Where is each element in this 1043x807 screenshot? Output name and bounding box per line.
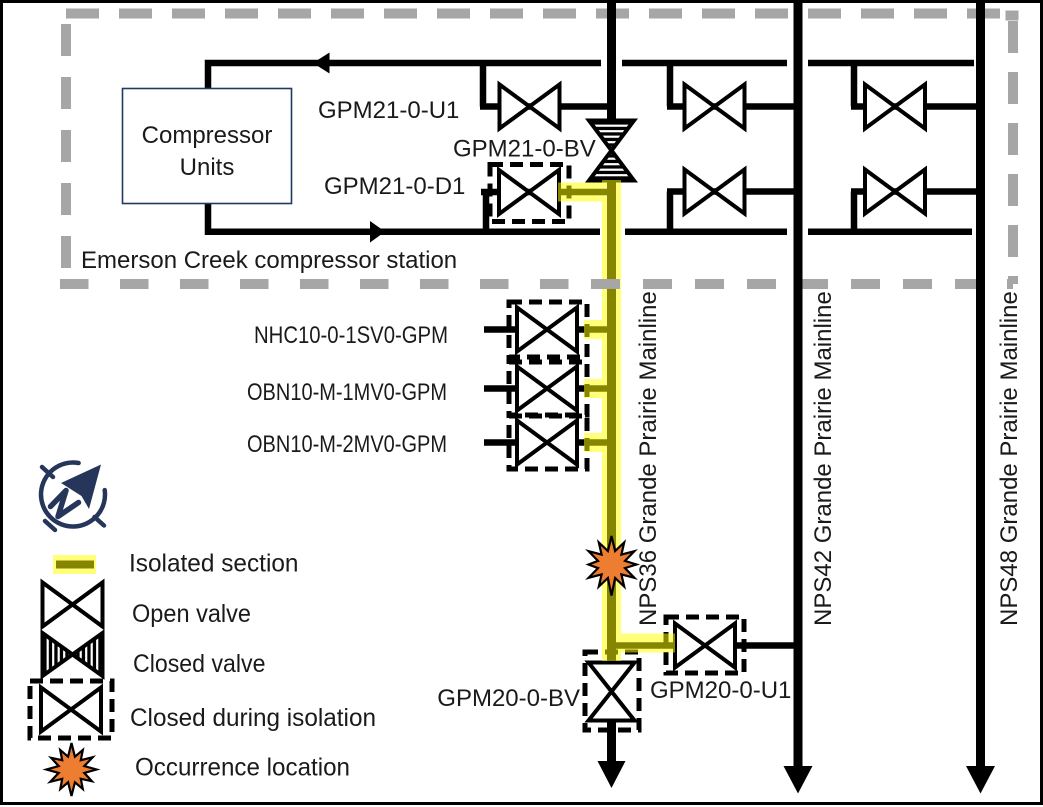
svg-text:OBN10-M-1MV0-GPM: OBN10-M-1MV0-GPM (247, 379, 447, 406)
svg-text:Occurrence location: Occurrence location (135, 754, 350, 782)
svg-text:Compressor: Compressor (142, 122, 273, 149)
svg-text:GPM21-0-U1: GPM21-0-U1 (318, 97, 459, 124)
svg-text:NPS48 Grande Prairie Mainline: NPS48 Grande Prairie Mainline (996, 291, 1023, 626)
svg-text:GPM20-0-U1: GPM20-0-U1 (650, 677, 791, 704)
svg-text:NPS36 Grande Prairie Mainline: NPS36 Grande Prairie Mainline (635, 291, 662, 626)
svg-text:Closed during isolation: Closed during isolation (130, 704, 376, 732)
svg-text:Open valve: Open valve (132, 600, 251, 628)
svg-text:Emerson Creek compressor stati: Emerson Creek compressor station (81, 247, 457, 274)
svg-text:GPM21-0-BV: GPM21-0-BV (453, 136, 596, 163)
svg-text:GPM20-0-BV: GPM20-0-BV (437, 685, 580, 712)
svg-text:OBN10-M-2MV0-GPM: OBN10-M-2MV0-GPM (247, 431, 447, 458)
svg-text:NPS42 Grande Prairie Mainline: NPS42 Grande Prairie Mainline (810, 291, 837, 626)
svg-text:GPM21-0-D1: GPM21-0-D1 (324, 173, 465, 200)
svg-text:Closed valve: Closed valve (133, 650, 266, 678)
svg-text:Units: Units (180, 154, 235, 181)
svg-text:Isolated section: Isolated section (129, 550, 299, 578)
svg-text:NHC10-0-1SV0-GPM: NHC10-0-1SV0-GPM (254, 322, 448, 349)
